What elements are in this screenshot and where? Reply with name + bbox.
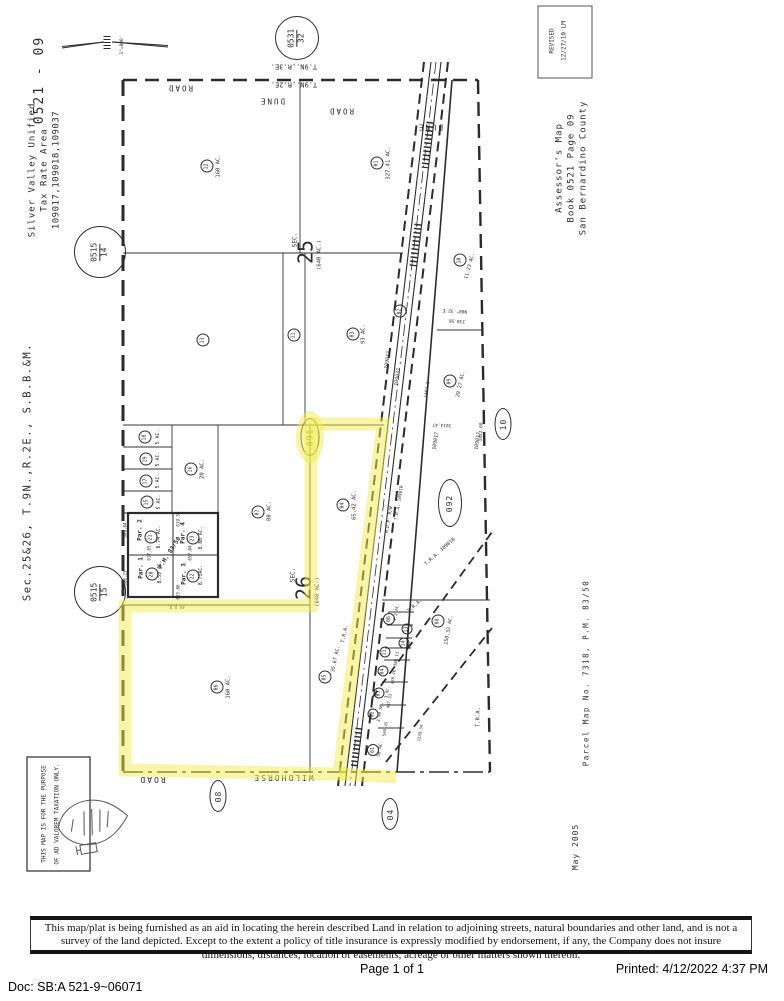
parcel-number: 20 (149, 571, 155, 577)
parcel-number: 07 (255, 509, 261, 515)
map-label: 109017,109018,109037 (51, 111, 62, 229)
map-labels-layer: 0521 - 09Silver Valley UnifiedTax Rate A… (0, 0, 784, 1001)
map-label: 1339.34 (416, 724, 424, 741)
parcel-number: 05 (322, 674, 328, 680)
parcel-number: 01 (374, 160, 380, 166)
parcel-number: 15 (144, 499, 150, 505)
map-label: Silver Valley Unified (27, 103, 38, 238)
map-label: Par. 1 (137, 557, 145, 579)
adjoining-page-number: 053132 (288, 26, 307, 49)
parcel-number: 02 (397, 308, 403, 314)
map-label: ROAD (167, 83, 193, 92)
map-label: 1"=800' (120, 36, 126, 55)
parcel-circle: 12 (201, 160, 214, 173)
parcel-number: 18 (142, 434, 148, 440)
map-label: 109017 (384, 351, 393, 370)
parcel-circle: 03 (347, 328, 360, 341)
parcel-circle: 22 (187, 570, 200, 583)
parcel-circle: 02 (394, 305, 407, 318)
map-label: 619.51 (175, 511, 180, 526)
map-label: San Bernardino County (578, 101, 589, 236)
parcel-circle: 16 (185, 463, 198, 476)
parcel-circle: 06 (211, 681, 224, 694)
map-label: 160 AC. (216, 154, 223, 177)
map-label: 5 AC. (155, 429, 161, 444)
map-label: 40 D.D. (167, 604, 185, 609)
map-label: DUNE (417, 122, 443, 131)
adjoining-page-circle: 051514 (74, 226, 126, 278)
map-label: 35.67 AC. (330, 645, 342, 673)
map-reference-ellipse: 091 (301, 418, 320, 456)
map-label: 25 (294, 240, 319, 264)
map-label: May 2005 (571, 824, 581, 871)
parcel-circle: 04 (337, 499, 350, 512)
parcel-number: 16 (188, 466, 194, 472)
parcel-circle: 19 (140, 453, 153, 466)
reference-number: 08 (213, 790, 222, 802)
map-label: 150.32 AC. (443, 615, 454, 646)
parcel-circle: 13 (197, 334, 210, 347)
map-label: 5 AC. (155, 473, 161, 488)
parcel-number: 04 (380, 668, 386, 674)
map-label: 29.27 AC. (455, 370, 467, 398)
parcel-circle: 15 (141, 496, 154, 509)
parcel-number: 23 (190, 535, 196, 541)
parcel-number: 09 (447, 378, 453, 384)
map-label: WILDHORSE (252, 772, 313, 782)
map-label: 428.46 (389, 669, 396, 684)
parcel-circle: 08 (432, 615, 445, 628)
parcel-circle: 18 (139, 431, 152, 444)
parcel-number: 19 (143, 456, 149, 462)
map-label: 1402.3 (424, 382, 432, 399)
map-label: Parcel Map No. 7318, P.M. 83/50 (581, 580, 590, 766)
parcel-circle: 01 (367, 744, 379, 756)
map-label: 65.42 AC. (352, 490, 359, 520)
parcel-number: 13 (200, 337, 206, 343)
parcel-circle: 11 (288, 329, 301, 342)
parcel-number: 10 (457, 257, 463, 263)
reference-number: 04 (385, 808, 394, 820)
parcel-circle: 17 (140, 475, 153, 488)
map-label: REVISED (548, 28, 556, 53)
parcel-number: 11 (382, 649, 388, 655)
map-label: ROAD (328, 106, 354, 115)
map-label: T.R.A. (476, 707, 483, 727)
map-label: 627.65 (146, 545, 151, 560)
parcel-circle: 04 (378, 666, 389, 677)
document-reference: Doc: SB:A 521-9~06071 (8, 980, 142, 994)
map-label: Sec.25&26, T.9N.,R.2E., S.B.B.&M. (21, 343, 34, 601)
map-label: 310.56 (449, 317, 466, 323)
map-label: OF AD VALOREM TAXATION ONLY. (53, 763, 61, 864)
title-disclaimer-box: This map/plat is being furnished as an a… (30, 916, 752, 954)
adjoining-page-circle: 051515 (74, 566, 126, 618)
parcel-circle: 09 (444, 375, 457, 388)
map-label: (640 AC.) (317, 240, 324, 270)
map-label: 1014.47 (432, 421, 451, 428)
map-label: 8.88 AC. (199, 526, 205, 549)
parcel-number: 11 (291, 332, 297, 338)
parcel-number: 08 (435, 618, 441, 624)
page-number: 14 (99, 243, 109, 261)
parcel-number: 17 (143, 478, 149, 484)
map-label: N00°-32'E (443, 307, 468, 314)
map-label: (640 AC.) (315, 577, 322, 607)
parcel-circle: 05 (319, 671, 332, 684)
parcel-circle: 10 (454, 254, 467, 267)
map-label: 26 (292, 576, 317, 600)
adjoining-page-number: 051515 (91, 580, 110, 603)
map-label: 609.04 (122, 522, 127, 537)
map-label: 20 AC. (200, 459, 207, 479)
parcel-circle: 11 (380, 647, 391, 658)
map-label: 327.41 AC. (386, 146, 393, 179)
parcel-number: 14 (401, 640, 407, 646)
parcel-number: 21 (148, 534, 154, 540)
parcel-circle: 03 (374, 688, 385, 699)
map-label: 8.71AC. (199, 565, 205, 585)
map-label: 109017 (432, 432, 441, 451)
map-reference-ellipse: 10 (495, 408, 512, 440)
parcel-number: 04 (340, 502, 346, 508)
parcel-circle: 02 (368, 709, 379, 720)
map-label: Book 0521 Page 09 (566, 113, 577, 222)
map-label: 12/27/10 LM (560, 21, 568, 61)
map-label: 93 AC. (361, 324, 368, 344)
map-label: Par. 2 (136, 519, 144, 541)
map-label: 1452.68 (479, 422, 485, 441)
parcel-number: 02 (370, 711, 376, 717)
map-label: 5 AC. (155, 451, 161, 466)
map-label: DUNE (259, 96, 285, 105)
parcel-circle: 20 (146, 568, 159, 581)
parcel-circle: 21 (145, 531, 158, 544)
parcel-number: 13 (404, 626, 410, 632)
parcel-number: 03 (350, 331, 356, 337)
map-label: Tax Rate Area (39, 128, 50, 211)
parcel-number: 06 (386, 616, 392, 622)
map-label: 80 AC. (267, 501, 274, 521)
map-label: 5 AC. (156, 494, 162, 509)
map-label: T.R.A. 109018 (423, 537, 456, 568)
parcel-circle: 07 (252, 506, 265, 519)
map-label: 8.59 AC. (158, 560, 164, 583)
parcel-circle: 06 (383, 613, 395, 625)
map-label: T.R.A. (340, 625, 350, 644)
reference-number: 10 (498, 418, 507, 430)
parcel-number: 01 (370, 747, 376, 753)
printed-timestamp: Printed: 4/12/2022 4:37 PM (616, 962, 768, 976)
map-label: THIS MAP IS FOR THE PURPOSE (40, 765, 48, 863)
page-number: 32 (296, 29, 306, 47)
map-label: 160 AC. (226, 675, 233, 698)
map-label: 540.45 (381, 721, 388, 736)
page-number: 15 (99, 583, 109, 601)
parcel-circle: 23 (187, 532, 200, 545)
adjoining-page-number: 051514 (91, 240, 110, 263)
map-reference-ellipse: 04 (382, 798, 399, 830)
parcel-circle: 01 (371, 157, 384, 170)
map-label: M.D.P. R/W (385, 506, 395, 534)
map-label: Assessor's Map (554, 123, 565, 213)
adjoining-page-circle: 053132 (275, 16, 319, 60)
assessor-map-document-page: 0521 - 09Silver Valley UnifiedTax Rate A… (0, 0, 784, 1001)
map-reference-ellipse: 092 (438, 479, 462, 527)
map-label: T.R.A. 109018 (394, 485, 405, 521)
map-label: ROAD (138, 774, 165, 784)
map-label: 615.86 (175, 584, 180, 599)
map-label: 437.33 (385, 693, 392, 708)
map-reference-ellipse: 08 (210, 780, 227, 812)
map-label: T.R.A. (406, 598, 424, 615)
parcel-circle: 14 (399, 638, 410, 649)
parcel-number: 12 (204, 163, 210, 169)
parcel-circle: 13 (402, 624, 413, 635)
map-label: 109037 (394, 368, 403, 387)
parcel-number: 06 (214, 684, 220, 690)
map-label: 657.04 (187, 545, 192, 560)
map-label: 388.13 (392, 651, 399, 666)
map-label: T.9N.,R.3E. (271, 62, 317, 71)
map-label: 8.74 AC. (157, 525, 163, 548)
reference-number: 091 (306, 428, 315, 445)
parcel-number: 22 (190, 573, 196, 579)
map-label: T.9N.,R.2E. (271, 80, 317, 89)
reference-number: 092 (445, 494, 454, 511)
parcel-number: 03 (376, 690, 382, 696)
